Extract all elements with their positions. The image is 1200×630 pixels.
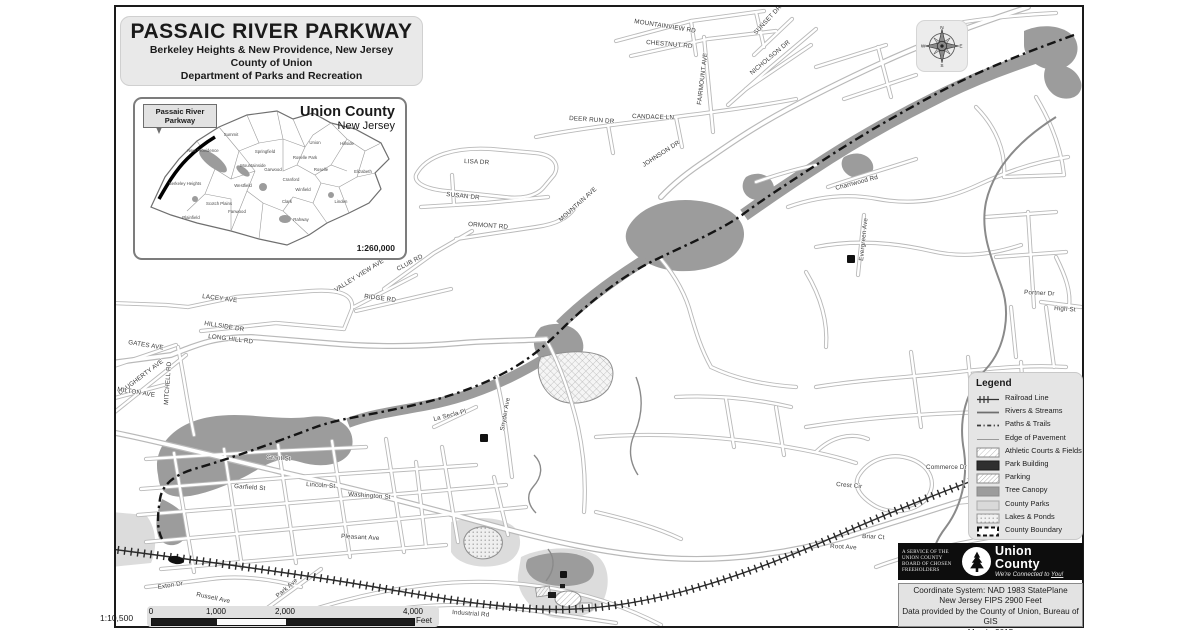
- compass-icon: N E S W: [921, 25, 963, 67]
- title-block: PASSAIC RIVER PARKWAY Berkeley Heights &…: [120, 16, 423, 86]
- tree-icon: [965, 550, 989, 574]
- map-subtitle-1: Berkeley Heights & New Providence, New J…: [121, 44, 422, 57]
- scale-bar: 01,0002,0004,000 Feet: [147, 606, 439, 627]
- inset-town-label: Fanwood: [228, 209, 246, 214]
- inset-state-name: New Jersey: [300, 120, 395, 133]
- banner-service-text: A SERVICE OF THE UNION COUNTY BOARD OF C…: [902, 550, 958, 574]
- inset-town-label: Springfield: [255, 149, 276, 154]
- legend-item-boundary: County Boundary: [976, 523, 1076, 536]
- banner-brand: Union County We're Connected to You!: [995, 545, 1079, 579]
- inset-map: SummitNew ProvidenceBerkeley HeightsSpri…: [133, 97, 407, 260]
- tagline-emphasis[interactable]: You!: [1051, 571, 1063, 578]
- park-building: [560, 584, 565, 588]
- street-label: JOHNSON DR: [641, 139, 681, 169]
- inset-town-label: Elizabeth: [354, 169, 372, 174]
- inset-town-label: Roselle: [314, 167, 329, 172]
- inset-scale: 1:260,000: [357, 243, 395, 253]
- scale-unit: Feet: [416, 616, 432, 625]
- map-subtitle-3: Department of Parks and Recreation: [121, 70, 422, 83]
- inset-title: Union County New Jersey: [300, 105, 395, 133]
- inset-town-label: Garwood: [264, 167, 282, 172]
- street-label: Portner Dr: [1024, 289, 1055, 298]
- inset-callout: Passaic River Parkway: [143, 104, 217, 128]
- inset-town-label: Hillside: [340, 141, 354, 146]
- inset-town-label: Plainfield: [182, 215, 200, 220]
- attribution-line: New Jersey FIPS 2900 Feet: [899, 596, 1082, 606]
- street-label: Commerce Dr: [926, 464, 967, 471]
- scale-tick: 0: [149, 607, 153, 616]
- inset-town-label: New Providence: [187, 148, 219, 153]
- banner-service-line: BOARD OF CHOSEN: [902, 562, 958, 568]
- street-label: Evergreen Ave: [858, 217, 870, 261]
- legend-item-trail: Paths & Trails: [976, 417, 1076, 430]
- street-label: LISA DR: [464, 158, 490, 166]
- callout-line-2: Parkway: [145, 116, 215, 125]
- legend-item-label: Athletic Courts & Fields: [1005, 446, 1082, 455]
- tagline-prefix: We're Connected to: [995, 571, 1051, 578]
- canopy-legend-icon: [976, 484, 1000, 495]
- tree-logo: [962, 547, 991, 576]
- street-label: Garfield St: [234, 483, 266, 492]
- park-building: [548, 592, 556, 598]
- compass-w: W: [921, 44, 926, 50]
- legend-item-label: County Boundary: [1005, 525, 1062, 534]
- legend-item-label: Tree Canopy: [1005, 485, 1047, 494]
- street-label: ORMONT RD: [468, 221, 509, 231]
- legend-title: Legend: [976, 378, 1076, 389]
- legend-item-label: Parking: [1005, 472, 1030, 481]
- legend-item-label: County Parks: [1005, 499, 1049, 508]
- parking-legend-icon: [976, 471, 1000, 482]
- poi-marker: [560, 571, 567, 578]
- pavement-legend-icon: [976, 432, 1000, 443]
- banner-tagline: We're Connected to You!: [995, 571, 1079, 579]
- scale-tick: 2,000: [275, 607, 295, 616]
- street-label: VALLEY VIEW AVE: [333, 258, 385, 294]
- inset-town-label: Berkeley Heights: [169, 181, 201, 186]
- map-title: PASSAIC RIVER PARKWAY: [121, 20, 422, 44]
- legend-items: Railroad LineRivers & StreamsPaths & Tra…: [976, 391, 1076, 536]
- inset-town-label: Roselle Park: [293, 155, 318, 160]
- street-label: GATES AVE: [128, 339, 164, 352]
- athletic-legend-icon: [976, 445, 1000, 456]
- legend-item-parking: Parking: [976, 470, 1076, 483]
- street-label: Exton Dr: [157, 580, 183, 591]
- parks-legend-icon: [976, 498, 1000, 509]
- legend-item-athletic: Athletic Courts & Fields: [976, 444, 1076, 457]
- street-label: Lincoln St: [306, 481, 336, 490]
- legend-item-label: Railroad Line: [1005, 393, 1049, 402]
- legend-item-label: Paths & Trails: [1005, 419, 1051, 428]
- inset-town-label: Union: [309, 140, 321, 145]
- compass-e: E: [959, 44, 962, 50]
- legend-item-lakes: Lakes & Ponds: [976, 510, 1076, 523]
- legend-item-parks: County Parks: [976, 497, 1076, 510]
- attribution-line: Coordinate System: NAD 1983 StatePlane: [899, 586, 1082, 596]
- street-label: Briar Ct: [862, 533, 885, 541]
- street-label: Industrial Rd: [452, 609, 490, 619]
- inset-town-label: Mountainside: [240, 163, 266, 168]
- building-legend-icon: [976, 458, 1000, 469]
- scale-ratio: 1:10,500: [100, 613, 133, 623]
- legend-item-building: Park Building: [976, 457, 1076, 470]
- street-label: DEER RUN DR: [569, 115, 615, 125]
- river-legend-icon: [976, 405, 1000, 416]
- street-label: MITCHELL RD: [163, 361, 173, 405]
- street-label: Root Ave: [830, 543, 857, 551]
- map-sheet: MOUNTAINVIEW RDCHESTNUT RDSUNSET DRNICHO…: [0, 0, 1200, 630]
- legend: Legend Railroad LineRivers & StreamsPath…: [968, 372, 1083, 540]
- scale-tick: 4,000: [403, 607, 423, 616]
- compass-n: N: [940, 25, 944, 31]
- street-label: CANDACE LN: [632, 113, 675, 121]
- callout-line-1: Passaic River: [145, 107, 215, 116]
- compass-s: S: [940, 63, 943, 67]
- inset-town-label: Winfield: [295, 187, 311, 192]
- legend-item-label: Edge of Pavement: [1005, 433, 1066, 442]
- legend-item-railroad: Railroad Line: [976, 391, 1076, 404]
- scale-tick: 1,000: [206, 607, 226, 616]
- banner-county-name: Union County: [995, 545, 1079, 571]
- legend-item-label: Rivers & Streams: [1005, 406, 1063, 415]
- banner-service-line: FREEHOLDERS: [902, 568, 958, 574]
- inset-town-label: Rahway: [293, 217, 309, 222]
- legend-item-pavement: Edge of Pavement: [976, 431, 1076, 444]
- scale-bar-segments: [151, 618, 415, 626]
- poi-marker: [480, 434, 488, 442]
- attribution-line: Data provided by the County of Union, Bu…: [899, 607, 1082, 628]
- legend-item-river: Rivers & Streams: [976, 404, 1076, 417]
- map-subtitle-2: County of Union: [121, 57, 422, 70]
- inset-town-label: Clark: [282, 199, 293, 204]
- boundary-legend-icon: [976, 524, 1000, 535]
- compass-rose: N E S W: [916, 20, 968, 72]
- lakes-legend-icon: [976, 511, 1000, 522]
- poi-marker: [847, 255, 855, 263]
- railroad-legend-icon: [976, 392, 1000, 403]
- attribution-box: Coordinate System: NAD 1983 StatePlane N…: [898, 583, 1083, 627]
- street-label: RIDGE RD: [364, 293, 397, 304]
- inset-town-label: Summit: [224, 132, 239, 137]
- inset-town-label: Scotch Plains: [206, 201, 232, 206]
- inset-town-label: Westfield: [234, 183, 252, 188]
- legend-item-label: Lakes & Ponds: [1005, 512, 1055, 521]
- street-label: Crest Cir: [836, 481, 863, 490]
- street-label: High St: [1054, 305, 1076, 314]
- trail-legend-icon: [976, 418, 1000, 429]
- inset-county-name: Union County: [300, 105, 395, 120]
- inset-town-label: Cranford: [283, 177, 300, 182]
- street-label: Russell Ave: [196, 591, 231, 605]
- street-label: MOUNTAIN AVE: [558, 186, 599, 224]
- legend-item-canopy: Tree Canopy: [976, 483, 1076, 496]
- inset-town-label: Linden: [335, 199, 349, 204]
- legend-item-label: Park Building: [1005, 459, 1049, 468]
- union-county-banner: A SERVICE OF THE UNION COUNTY BOARD OF C…: [898, 543, 1083, 580]
